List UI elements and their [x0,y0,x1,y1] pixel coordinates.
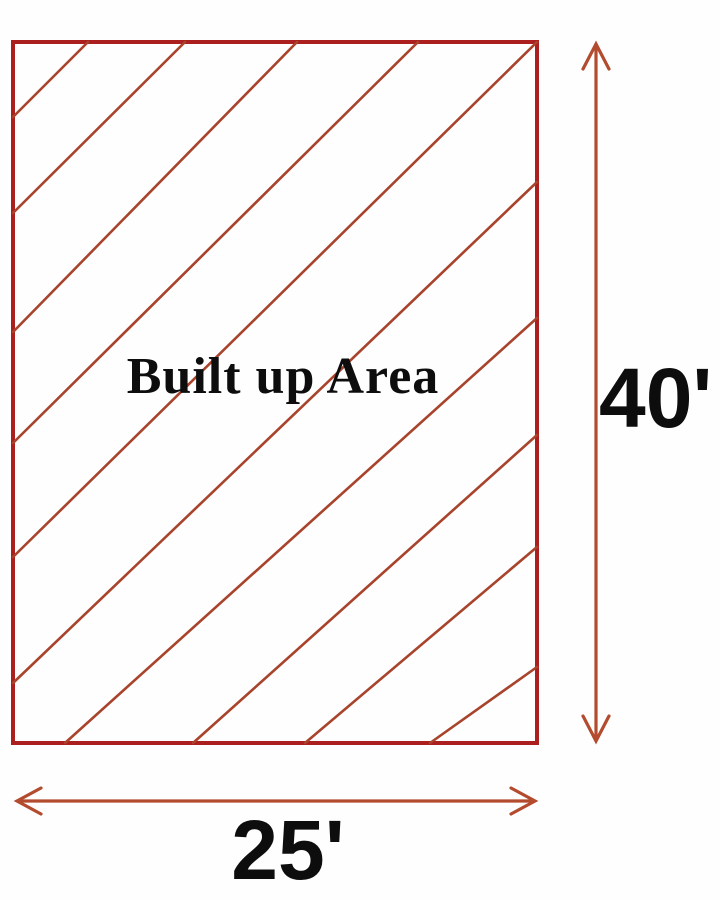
hatch-line [305,547,537,743]
hatch-line [13,42,537,557]
hatch-line [13,182,537,683]
hatch-line [430,667,537,743]
hatch-line [13,42,297,332]
floor-plan-diagram: Built up Area 40' 25' [0,0,720,900]
height-dimension-label: 40' [599,356,712,440]
hatch-line [13,42,185,213]
diagram-canvas [0,0,720,900]
hatch-line [13,42,88,117]
area-label: Built up Area [33,351,533,403]
width-dimension-label: 25' [188,808,388,892]
